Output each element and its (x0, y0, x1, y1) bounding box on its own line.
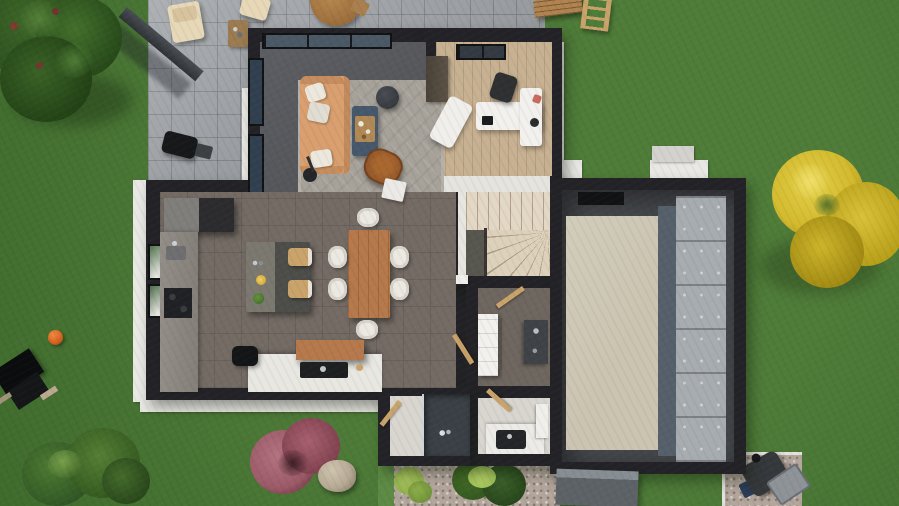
bbq-side-shelf (195, 143, 214, 159)
hall-radiator (456, 275, 468, 284)
garage-parapet-east (650, 160, 708, 180)
floorplan-render (0, 0, 899, 506)
tree-berries3 (36, 62, 43, 69)
counter-jar (356, 364, 363, 371)
wc-boiler (536, 404, 548, 438)
green-bush-highlight (48, 450, 82, 478)
hall-floor (438, 176, 550, 192)
stairs-upper-flight (466, 192, 550, 230)
lounge-chair-1 (167, 1, 205, 44)
wc-faucet (507, 434, 512, 439)
white-side-table (381, 178, 407, 202)
dining-chair-left-2 (328, 278, 347, 300)
dining-chair-bottom (356, 320, 378, 339)
wheelie-bin (735, 450, 810, 506)
tree-berries2 (52, 8, 59, 15)
desk-laptop (482, 116, 493, 125)
stair-railing (484, 228, 487, 276)
south-shrub-light (392, 463, 434, 506)
dining-chair-top (357, 208, 379, 227)
office-skylight (456, 44, 506, 60)
bar-stool-1 (288, 248, 312, 266)
stair-stringer (458, 192, 466, 276)
island-yellow-dish (256, 275, 266, 285)
dining-chair-right-2 (390, 278, 409, 300)
tree-highlight2 (54, 44, 94, 78)
garden-rock (318, 460, 356, 492)
island-bottles (252, 260, 264, 266)
yellow-tree-highlight (790, 164, 830, 198)
utility-fridge-freezer (478, 314, 498, 376)
garden-furniture-leg2 (0, 392, 12, 405)
garage-roofbox (652, 146, 694, 162)
stairs-winder-flight (486, 230, 550, 276)
sofa-pillow-2 (306, 101, 330, 124)
dining-chair-left-1 (328, 246, 347, 268)
yellow-tree (756, 142, 899, 307)
cooktop (164, 288, 192, 318)
coffee-table-tray (355, 116, 375, 142)
wood-wall-cabinet (296, 340, 364, 360)
fridge-housing (164, 198, 234, 232)
island-plant (253, 293, 264, 304)
understair-floor (466, 230, 486, 276)
living-corner-glazing (262, 33, 392, 49)
office-wardrobe (426, 56, 448, 102)
south-counter-faucet (320, 366, 326, 372)
black-appliance (232, 346, 258, 366)
tree-berries1 (10, 22, 18, 30)
entrance-canopy (555, 469, 638, 506)
kitchen-sink (166, 246, 186, 260)
sofa-pillow-3 (310, 149, 333, 169)
yellow-tree-blob3 (790, 216, 864, 288)
large-green-tree (0, 0, 152, 148)
lounge-chair-1-cushion (172, 5, 198, 23)
black-garden-furniture (0, 350, 58, 410)
living-west-window-2 (248, 134, 264, 194)
side-table (228, 20, 248, 47)
utility-counter (524, 320, 548, 364)
garage-wall-band (658, 206, 676, 456)
kitchen-faucet (172, 241, 177, 246)
desk-decor-dark (530, 118, 539, 127)
wc-sink (496, 430, 526, 449)
green-bush-blob3 (102, 458, 150, 504)
side-table-items (232, 25, 243, 39)
garage-sectional-door (676, 196, 726, 462)
dining-table (348, 230, 390, 318)
orange-ball (48, 330, 63, 345)
shower-fixture (438, 428, 452, 438)
garage-skylight (578, 192, 624, 205)
garage-slab (566, 216, 658, 450)
dining-chair-right-1 (390, 246, 409, 268)
bar-stool-2 (288, 280, 312, 298)
wood-ladder (580, 0, 612, 32)
pink-bush-dark-core (278, 450, 308, 476)
round-pouf (376, 86, 399, 109)
wood-bench (533, 0, 583, 18)
living-west-window-1 (248, 58, 264, 126)
green-bush (18, 424, 152, 506)
tree-highlight1 (18, 0, 62, 38)
utility-fridge-side (498, 318, 502, 370)
shower-tray (422, 394, 470, 456)
shrub-dark-highlight (468, 466, 496, 488)
shrub-light-blob2 (408, 481, 432, 503)
yellow-tree-gap (814, 194, 840, 216)
